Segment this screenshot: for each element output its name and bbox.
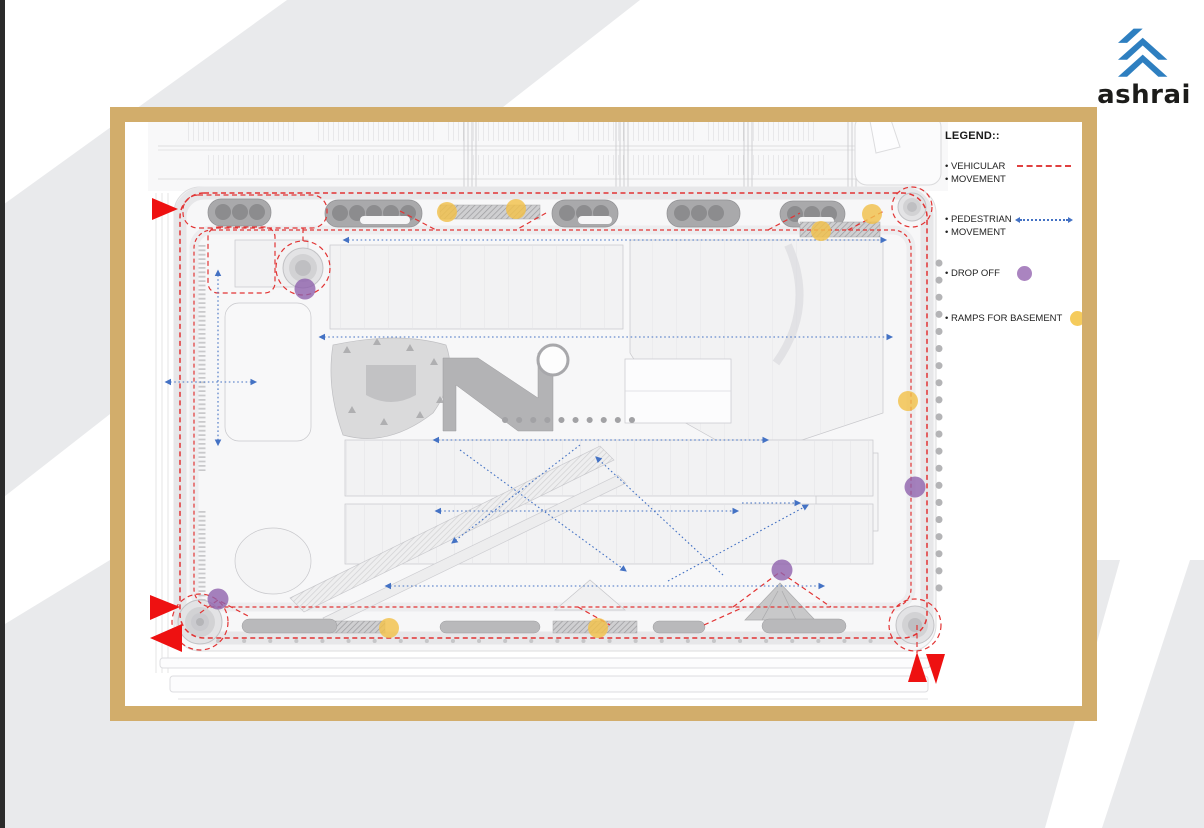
site-plan <box>148 113 948 713</box>
drop-off-circle-icon <box>1017 266 1032 281</box>
legend: LEGEND:: • VEHICULAR • MOVEMENT • PEDEST… <box>945 130 1085 326</box>
entry-arrow-bottom-right-down <box>926 654 945 684</box>
ramp-circle-icon <box>1070 311 1085 326</box>
dotted-line <box>1020 219 1068 221</box>
logo-text: ashrai <box>1094 83 1194 107</box>
legend-label: • VEHICULAR <box>945 161 1085 174</box>
roundabout-top-right <box>898 193 926 221</box>
arrow-right-icon <box>1068 217 1073 223</box>
pedestrian-dotted-arrow-icon <box>1015 217 1073 223</box>
legend-item-vehicular: • VEHICULAR • MOVEMENT <box>945 161 1085 186</box>
legend-label: • MOVEMENT <box>945 174 1085 187</box>
legend-label: • RAMPS FOR BASEMENT <box>945 313 1062 324</box>
legend-label: • DROP OFF <box>945 268 1000 279</box>
screen-edge-strip <box>0 0 5 828</box>
legend-item-pedestrian: • PEDESTRIAN • MOVEMENT <box>945 214 1085 239</box>
legend-item-ramps: • RAMPS FOR BASEMENT <box>945 311 1085 326</box>
brand-logo: ashrai <box>1094 26 1194 107</box>
legend-title: LEGEND:: <box>945 130 1085 142</box>
legend-label: • MOVEMENT <box>945 227 1085 240</box>
slide-frame: LEGEND:: • VEHICULAR • MOVEMENT • PEDEST… <box>110 107 1097 721</box>
entry-arrow-bottom-left-out <box>150 624 182 652</box>
logo-mark-icon <box>1100 26 1188 78</box>
legend-item-drop-off: • DROP OFF <box>945 266 1085 281</box>
roundabout-bottom-right <box>896 606 934 644</box>
slide: ashrai <box>0 0 1204 828</box>
vehicular-dashed-line-icon <box>1017 165 1071 167</box>
chevron-band-bottom-right <box>1102 560 1204 828</box>
